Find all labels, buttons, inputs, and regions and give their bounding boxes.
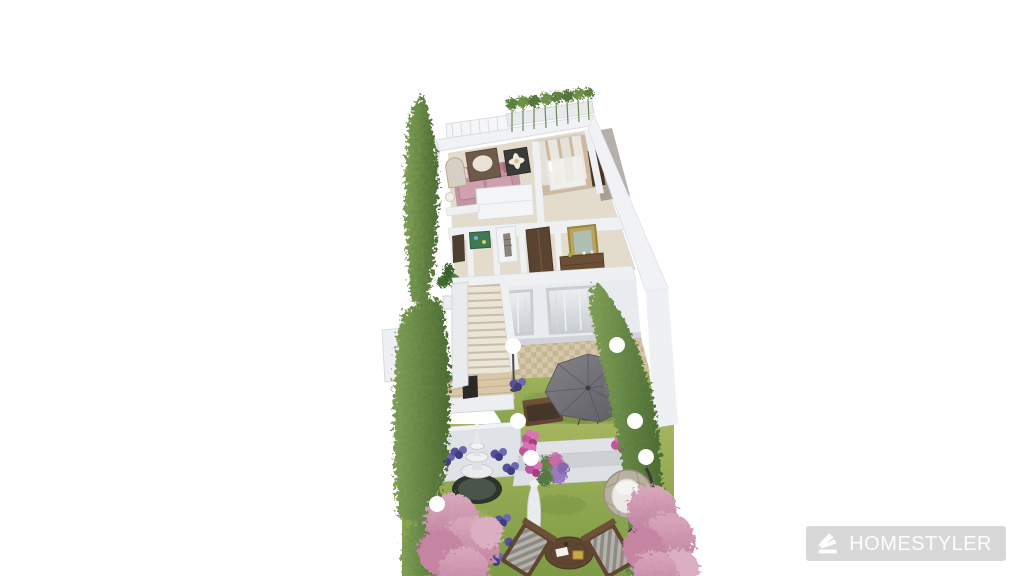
globe-light: [505, 338, 521, 354]
green-painting: [469, 231, 490, 248]
gold-frame: [573, 551, 583, 559]
painting-dab-1: [474, 236, 478, 240]
globe-light: [510, 413, 526, 429]
blossom-tree-right: [622, 485, 699, 576]
hall-door: [450, 234, 465, 264]
side-lamp: [446, 193, 455, 202]
homestyler-fan-logo-icon: [816, 532, 840, 556]
watermark-label: HOMESTYLER: [849, 534, 992, 554]
cup: [564, 542, 568, 546]
globe-light: [523, 450, 539, 466]
painting-dab-2: [482, 240, 486, 244]
dresser-bottle-2: [590, 250, 593, 253]
globe-light: [429, 496, 445, 512]
homestyler-watermark: HOMESTYLER: [806, 526, 1006, 561]
white-closet: [496, 226, 518, 263]
globe-light: [609, 337, 625, 353]
globe-light: [638, 449, 654, 465]
stair-stringer-left: [452, 282, 468, 389]
mirror-glass: [573, 230, 593, 254]
dresser-bottle: [582, 251, 585, 254]
dresser-plant: [568, 253, 572, 257]
cup-2: [575, 543, 579, 547]
render-canvas: HOMESTYLER: [0, 0, 1024, 576]
globe-light: [627, 413, 643, 429]
home-3d-render: [0, 0, 1024, 576]
white-cabinet: [476, 184, 534, 220]
